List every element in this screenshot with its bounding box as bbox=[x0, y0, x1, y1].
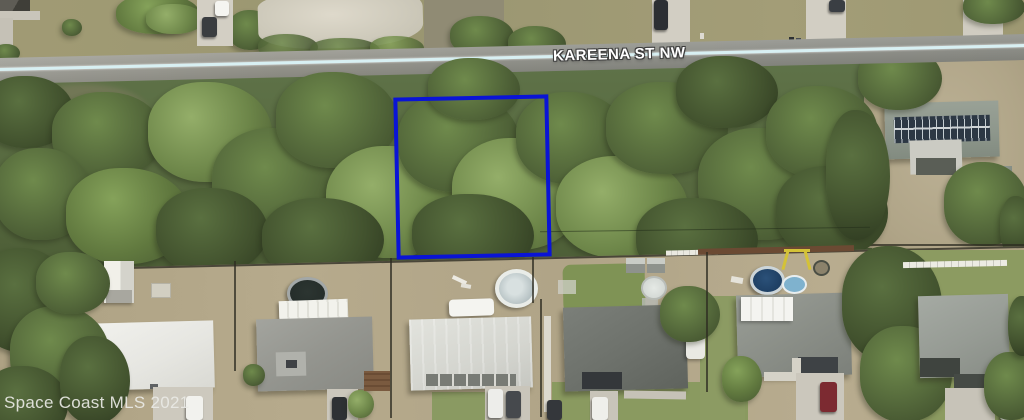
street-name-label: KAREENA ST NW bbox=[553, 44, 686, 64]
tree-canopy bbox=[826, 110, 890, 240]
car-red bbox=[820, 382, 837, 412]
tree-canopy bbox=[156, 188, 268, 274]
carport-canopy bbox=[741, 297, 793, 321]
palm-tree bbox=[348, 390, 374, 418]
fence-line bbox=[390, 258, 392, 418]
play-structure bbox=[558, 280, 576, 294]
car-dark bbox=[332, 397, 347, 420]
car-dark bbox=[202, 17, 217, 37]
car-dark bbox=[547, 400, 562, 420]
tree-canopy bbox=[984, 352, 1024, 420]
walkway bbox=[624, 390, 686, 399]
above-ground-pool-dark bbox=[750, 266, 785, 295]
mls-watermark: Space Coast MLS 2021 bbox=[4, 393, 190, 413]
wood-fence bbox=[364, 371, 390, 391]
fire-pit bbox=[813, 260, 830, 276]
kiddie-pool bbox=[782, 275, 807, 294]
rv-trailer bbox=[449, 298, 495, 317]
tree-canopy bbox=[36, 252, 110, 314]
shed bbox=[626, 258, 645, 273]
mailbox bbox=[700, 33, 704, 39]
bush bbox=[243, 364, 265, 386]
garage-door bbox=[582, 372, 622, 389]
car-white bbox=[488, 389, 503, 418]
house-roof bbox=[256, 316, 374, 391]
fence-line bbox=[234, 261, 236, 371]
palm-tree bbox=[722, 356, 762, 402]
fence-line bbox=[532, 257, 534, 303]
tree-canopy bbox=[146, 4, 204, 34]
car-white bbox=[215, 1, 229, 16]
privacy-wall bbox=[544, 316, 551, 412]
entry-door bbox=[286, 360, 297, 368]
shed bbox=[647, 258, 665, 273]
swing-set-bar bbox=[784, 249, 810, 252]
tree-canopy bbox=[676, 56, 778, 128]
porch-shadow bbox=[424, 374, 516, 386]
fence-line bbox=[706, 252, 708, 392]
garage-door bbox=[798, 357, 838, 374]
car-white bbox=[592, 397, 608, 420]
car-dark bbox=[506, 391, 521, 418]
shed-base bbox=[106, 290, 132, 303]
car-dark bbox=[654, 0, 668, 30]
bush bbox=[62, 19, 82, 36]
car-dark bbox=[829, 0, 845, 12]
lot-boundary bbox=[393, 94, 551, 259]
fence-line bbox=[540, 299, 542, 417]
garage-door bbox=[954, 374, 986, 389]
concrete-pad bbox=[151, 283, 171, 298]
tree-canopy bbox=[660, 286, 720, 342]
porch-interior bbox=[916, 158, 956, 175]
lawn-patch bbox=[432, 392, 487, 420]
aerial-photo: KAREENA ST NW bbox=[0, 0, 1024, 420]
